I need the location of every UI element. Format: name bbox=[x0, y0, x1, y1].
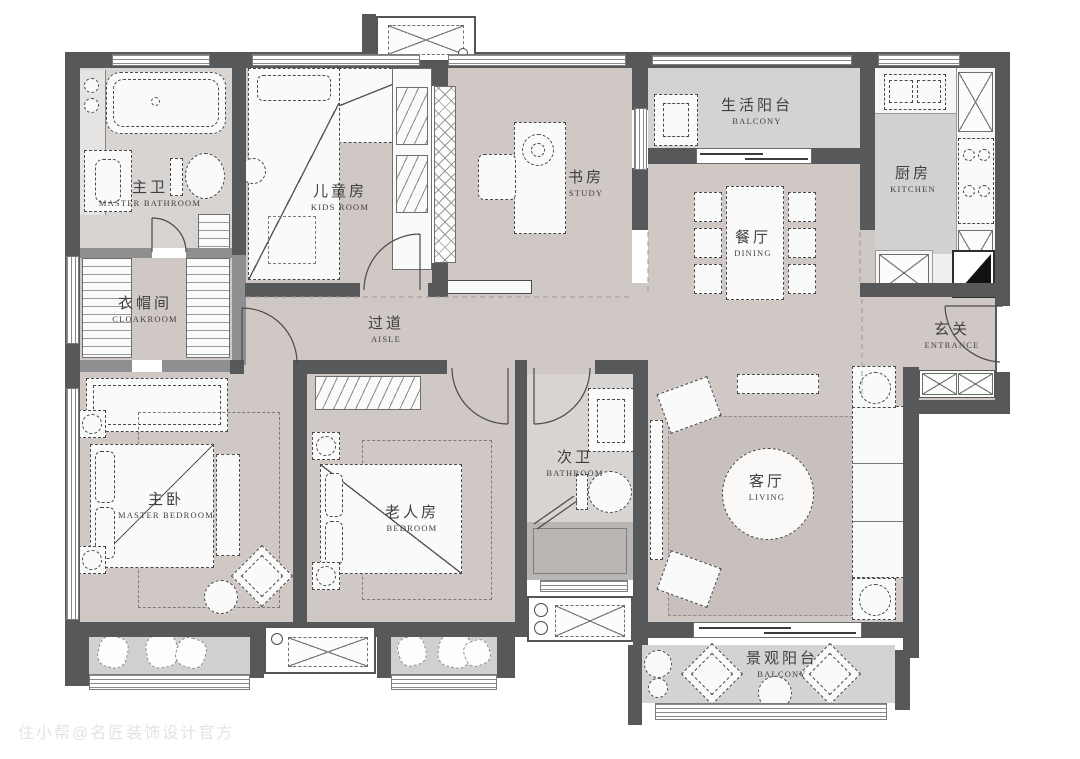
burner-icon bbox=[978, 149, 990, 161]
room-name-en: BALCONY bbox=[721, 116, 793, 126]
console-table-icon bbox=[737, 374, 819, 394]
balcony-railing bbox=[652, 55, 852, 65]
rug-icon bbox=[268, 216, 316, 264]
room-label-study: 书房 STUDY bbox=[568, 166, 604, 198]
room-label-living: 客厅 LIVING bbox=[749, 470, 785, 502]
wall bbox=[862, 622, 903, 638]
wall bbox=[903, 367, 919, 658]
sliding-door bbox=[693, 622, 862, 638]
ac-platform bbox=[264, 626, 376, 674]
wall bbox=[377, 622, 391, 678]
room-label-elder-bedroom: 老人房 BEDROOM bbox=[385, 501, 439, 533]
room-name-en: BEDROOM bbox=[385, 523, 439, 533]
room-name-zh: 生活阳台 bbox=[721, 94, 793, 115]
window bbox=[66, 388, 79, 620]
washing-machine-icon bbox=[84, 98, 99, 113]
wall bbox=[293, 360, 307, 622]
wall bbox=[895, 650, 910, 710]
floor-plan: 主卫 MASTER BATHROOM 衣帽间 CLOAKROOM 儿童房 KID… bbox=[0, 0, 1080, 759]
wall bbox=[860, 52, 875, 162]
room-label-life-balcony: 生活阳台 BALCONY bbox=[721, 94, 793, 126]
chair-icon bbox=[788, 192, 816, 222]
wall bbox=[162, 360, 232, 372]
pillow-icon bbox=[325, 473, 343, 517]
side-table-icon bbox=[852, 366, 896, 408]
room-name-zh: 主卧 bbox=[118, 488, 214, 509]
burner-icon bbox=[978, 185, 990, 197]
washing-machine-icon bbox=[654, 94, 698, 146]
bed-bench-icon bbox=[216, 454, 240, 556]
ceiling-lamp-icon bbox=[78, 546, 106, 574]
wall bbox=[245, 283, 360, 297]
room-name-zh: 景观阳台 bbox=[746, 647, 818, 668]
chair-icon bbox=[694, 228, 722, 258]
room-name-zh: 老人房 bbox=[385, 501, 439, 522]
room-label-master-bathroom: 主卫 MASTER BATHROOM bbox=[99, 176, 201, 208]
room-name-en: AISLE bbox=[368, 334, 404, 344]
pillow-icon bbox=[257, 75, 331, 101]
ac-platform bbox=[527, 596, 633, 642]
room-name-en: MASTER BEDROOM bbox=[118, 510, 214, 520]
wall bbox=[595, 360, 633, 374]
sofa-icon bbox=[852, 406, 904, 578]
wall bbox=[497, 622, 515, 678]
room-name-en: DINING bbox=[734, 248, 771, 258]
room-label-kids-room: 儿童房 KIDS ROOM bbox=[311, 180, 369, 212]
bay-window-sill bbox=[89, 674, 250, 690]
room-name-en: ENTRANCE bbox=[925, 340, 980, 350]
wardrobe-icon bbox=[186, 258, 230, 358]
bookshelf-icon bbox=[434, 86, 456, 263]
ceiling-lamp-icon bbox=[312, 562, 340, 590]
room-name-zh: 过道 bbox=[368, 312, 404, 333]
desk-cabinet-icon bbox=[392, 68, 432, 270]
window bbox=[878, 54, 960, 66]
room-label-second-bathroom: 次卫 BATHROOM bbox=[546, 446, 603, 478]
window bbox=[66, 256, 79, 344]
wall bbox=[632, 52, 648, 110]
door-opening bbox=[997, 306, 1010, 372]
wall bbox=[515, 360, 527, 637]
wall bbox=[648, 622, 693, 638]
wall bbox=[633, 360, 648, 645]
chair-icon bbox=[694, 192, 722, 222]
wall bbox=[432, 263, 448, 297]
wall bbox=[632, 168, 648, 230]
room-name-zh: 玄关 bbox=[925, 318, 980, 339]
wall bbox=[250, 622, 264, 678]
room-name-zh: 厨房 bbox=[890, 162, 936, 183]
wall bbox=[860, 283, 1010, 297]
room-label-kitchen: 厨房 KITCHEN bbox=[890, 162, 936, 194]
bench-icon bbox=[440, 280, 532, 294]
wall bbox=[80, 248, 152, 258]
wall bbox=[186, 248, 232, 258]
room-label-entrance: 玄关 ENTRANCE bbox=[925, 318, 980, 350]
room-label-cloakroom: 衣帽间 CLOAKROOM bbox=[112, 292, 178, 324]
room-name-en: KITCHEN bbox=[890, 184, 936, 194]
burner-icon bbox=[963, 185, 975, 197]
chair-icon bbox=[788, 228, 816, 258]
bath-cabinet-icon bbox=[198, 214, 230, 252]
room-name-zh: 书房 bbox=[568, 166, 604, 187]
plant-icon bbox=[644, 650, 672, 678]
wall bbox=[812, 148, 860, 164]
room-name-en: STUDY bbox=[568, 188, 604, 198]
room-name-en: BALCONY bbox=[746, 669, 818, 679]
window bbox=[112, 54, 210, 66]
wall bbox=[232, 255, 246, 365]
wall bbox=[230, 360, 244, 374]
toilet-icon bbox=[576, 474, 588, 510]
room-label-dining: 餐厅 DINING bbox=[734, 226, 771, 258]
pillow-icon bbox=[95, 451, 115, 503]
pillow-icon bbox=[325, 521, 343, 565]
ceiling-lamp-icon bbox=[312, 432, 340, 460]
side-table-icon bbox=[852, 578, 896, 620]
room-label-master-bedroom: 主卧 MASTER BEDROOM bbox=[118, 488, 214, 520]
sliding-door bbox=[696, 148, 812, 164]
room-name-en: BATHROOM bbox=[546, 468, 603, 478]
shoe-cabinet-icon bbox=[919, 370, 995, 398]
room-name-zh: 儿童房 bbox=[311, 180, 369, 201]
wall bbox=[860, 162, 875, 230]
globe-icon bbox=[522, 134, 554, 166]
watermark-text: 住小帮@名匠装饰设计官方 bbox=[18, 719, 234, 743]
wall bbox=[362, 14, 376, 58]
shower-tray bbox=[533, 528, 627, 574]
wall bbox=[307, 360, 447, 374]
room-name-en: KIDS ROOM bbox=[311, 202, 369, 212]
chair-icon bbox=[478, 154, 516, 200]
chair-icon bbox=[788, 264, 816, 294]
window bbox=[252, 54, 420, 66]
tv-cabinet-icon bbox=[650, 420, 663, 560]
room-name-zh: 次卫 bbox=[546, 446, 603, 467]
window bbox=[634, 108, 647, 170]
kitchen-sink-icon bbox=[884, 74, 946, 110]
wall bbox=[915, 400, 1010, 414]
burner-icon bbox=[963, 149, 975, 161]
wall bbox=[65, 622, 89, 686]
ceiling-lamp-icon bbox=[78, 410, 106, 438]
room-name-zh: 主卫 bbox=[99, 176, 201, 197]
room-label-aisle: 过道 AISLE bbox=[368, 312, 404, 344]
sink-icon bbox=[588, 388, 634, 452]
room-name-en: MASTER BATHROOM bbox=[99, 198, 201, 208]
wall bbox=[80, 360, 132, 372]
room-name-zh: 餐厅 bbox=[734, 226, 771, 247]
plant-icon bbox=[648, 678, 668, 698]
room-name-en: LIVING bbox=[749, 492, 785, 502]
washing-machine-icon bbox=[84, 78, 99, 93]
chair-icon bbox=[694, 264, 722, 294]
stove-icon bbox=[958, 138, 994, 224]
wall bbox=[232, 52, 246, 255]
room-label-view-balcony: 景观阳台 BALCONY bbox=[746, 647, 818, 679]
bay-window-sill bbox=[391, 674, 497, 690]
window bbox=[540, 580, 628, 592]
room-name-zh: 客厅 bbox=[749, 470, 785, 491]
wall bbox=[648, 148, 696, 164]
bookshelf-icon bbox=[315, 376, 421, 410]
kitchen-cabinet-icon bbox=[958, 72, 993, 132]
room-name-en: CLOAKROOM bbox=[112, 314, 178, 324]
window bbox=[448, 54, 626, 66]
room-name-zh: 衣帽间 bbox=[112, 292, 178, 313]
bathtub-icon bbox=[106, 72, 226, 134]
balcony-railing bbox=[655, 703, 887, 720]
wall bbox=[628, 645, 642, 725]
stool-icon bbox=[204, 580, 238, 614]
